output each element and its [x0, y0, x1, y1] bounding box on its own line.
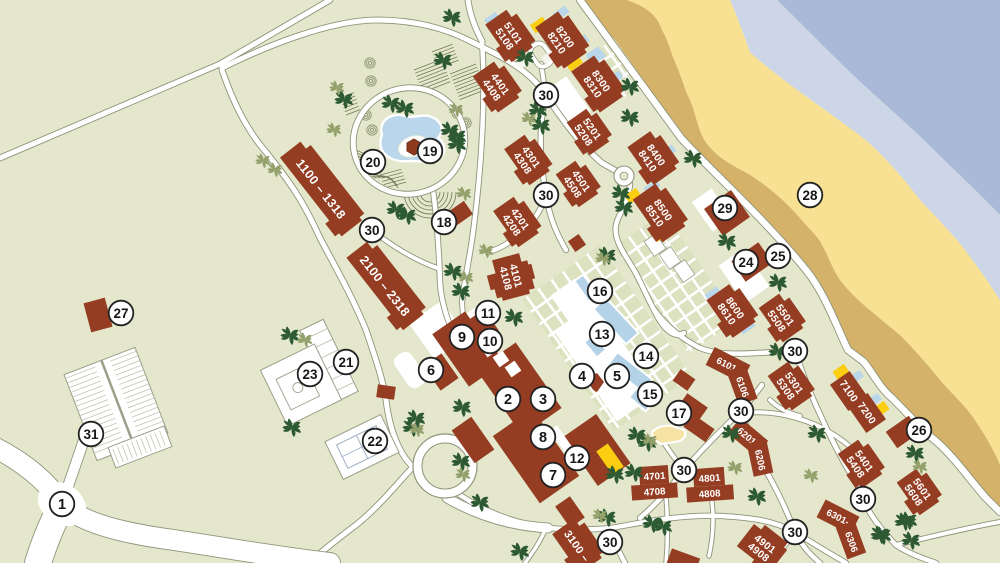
svg-text:23: 23: [302, 367, 318, 382]
svg-text:28: 28: [802, 188, 818, 203]
svg-text:22: 22: [367, 434, 382, 449]
svg-text:9: 9: [458, 330, 466, 346]
svg-text:30: 30: [855, 492, 870, 507]
svg-text:8: 8: [539, 430, 547, 446]
svg-text:30: 30: [733, 404, 748, 419]
svg-text:16: 16: [592, 284, 608, 299]
svg-text:11: 11: [481, 306, 496, 321]
svg-text:29: 29: [717, 201, 732, 216]
svg-text:17: 17: [671, 406, 686, 421]
svg-text:15: 15: [642, 387, 658, 402]
svg-text:4: 4: [578, 369, 586, 385]
svg-text:18: 18: [436, 215, 452, 230]
svg-text:14: 14: [638, 349, 654, 364]
svg-text:26: 26: [911, 423, 927, 438]
svg-text:6: 6: [427, 363, 435, 379]
svg-text:21: 21: [338, 355, 354, 370]
svg-text:3: 3: [539, 392, 547, 408]
svg-text:24: 24: [738, 255, 754, 270]
svg-text:7: 7: [549, 468, 557, 484]
svg-text:20: 20: [365, 155, 380, 170]
svg-text:19: 19: [422, 144, 437, 159]
svg-text:30: 30: [676, 463, 691, 478]
svg-text:30: 30: [787, 344, 802, 359]
svg-text:30: 30: [602, 535, 617, 550]
svg-text:1: 1: [58, 497, 66, 513]
svg-text:10: 10: [482, 334, 497, 349]
svg-text:2: 2: [504, 392, 512, 408]
svg-text:25: 25: [770, 249, 786, 264]
svg-text:31: 31: [83, 427, 99, 442]
svg-text:5: 5: [613, 369, 621, 385]
svg-text:30: 30: [364, 223, 379, 238]
svg-text:30: 30: [538, 188, 553, 203]
svg-text:12: 12: [569, 451, 584, 466]
svg-text:13: 13: [594, 327, 610, 342]
svg-text:30: 30: [787, 525, 802, 540]
svg-text:27: 27: [113, 306, 128, 321]
svg-text:30: 30: [538, 88, 553, 103]
